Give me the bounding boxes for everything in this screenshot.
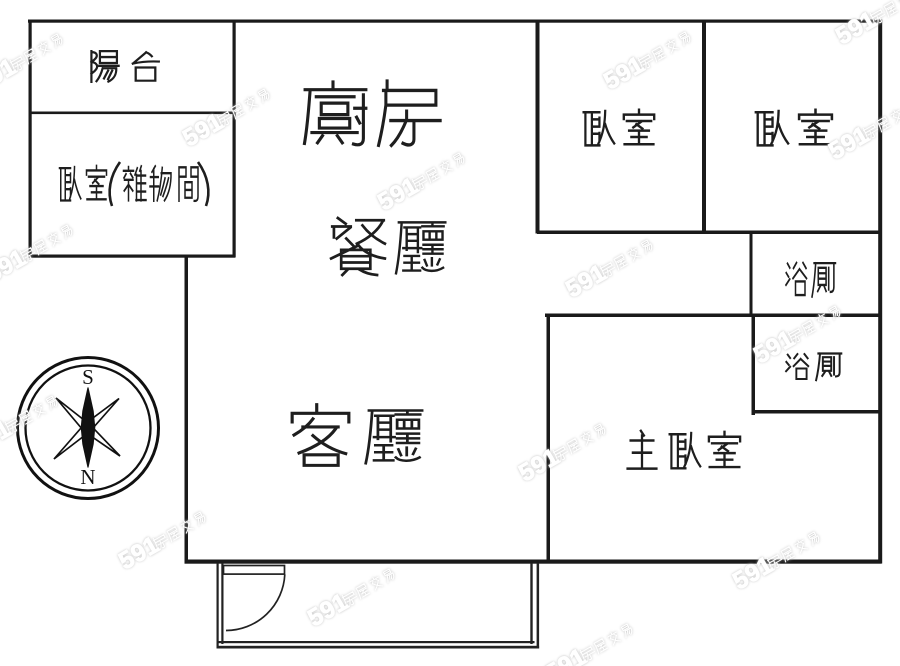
svg-text:N: N [80,465,95,489]
svg-text:S: S [82,365,94,389]
